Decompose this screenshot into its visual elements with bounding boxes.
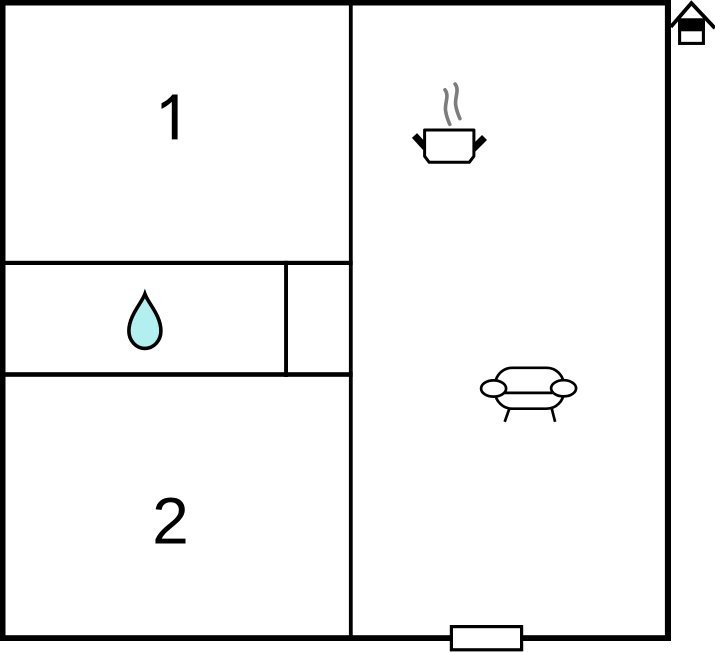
svg-text:2: 2 [152,484,189,558]
